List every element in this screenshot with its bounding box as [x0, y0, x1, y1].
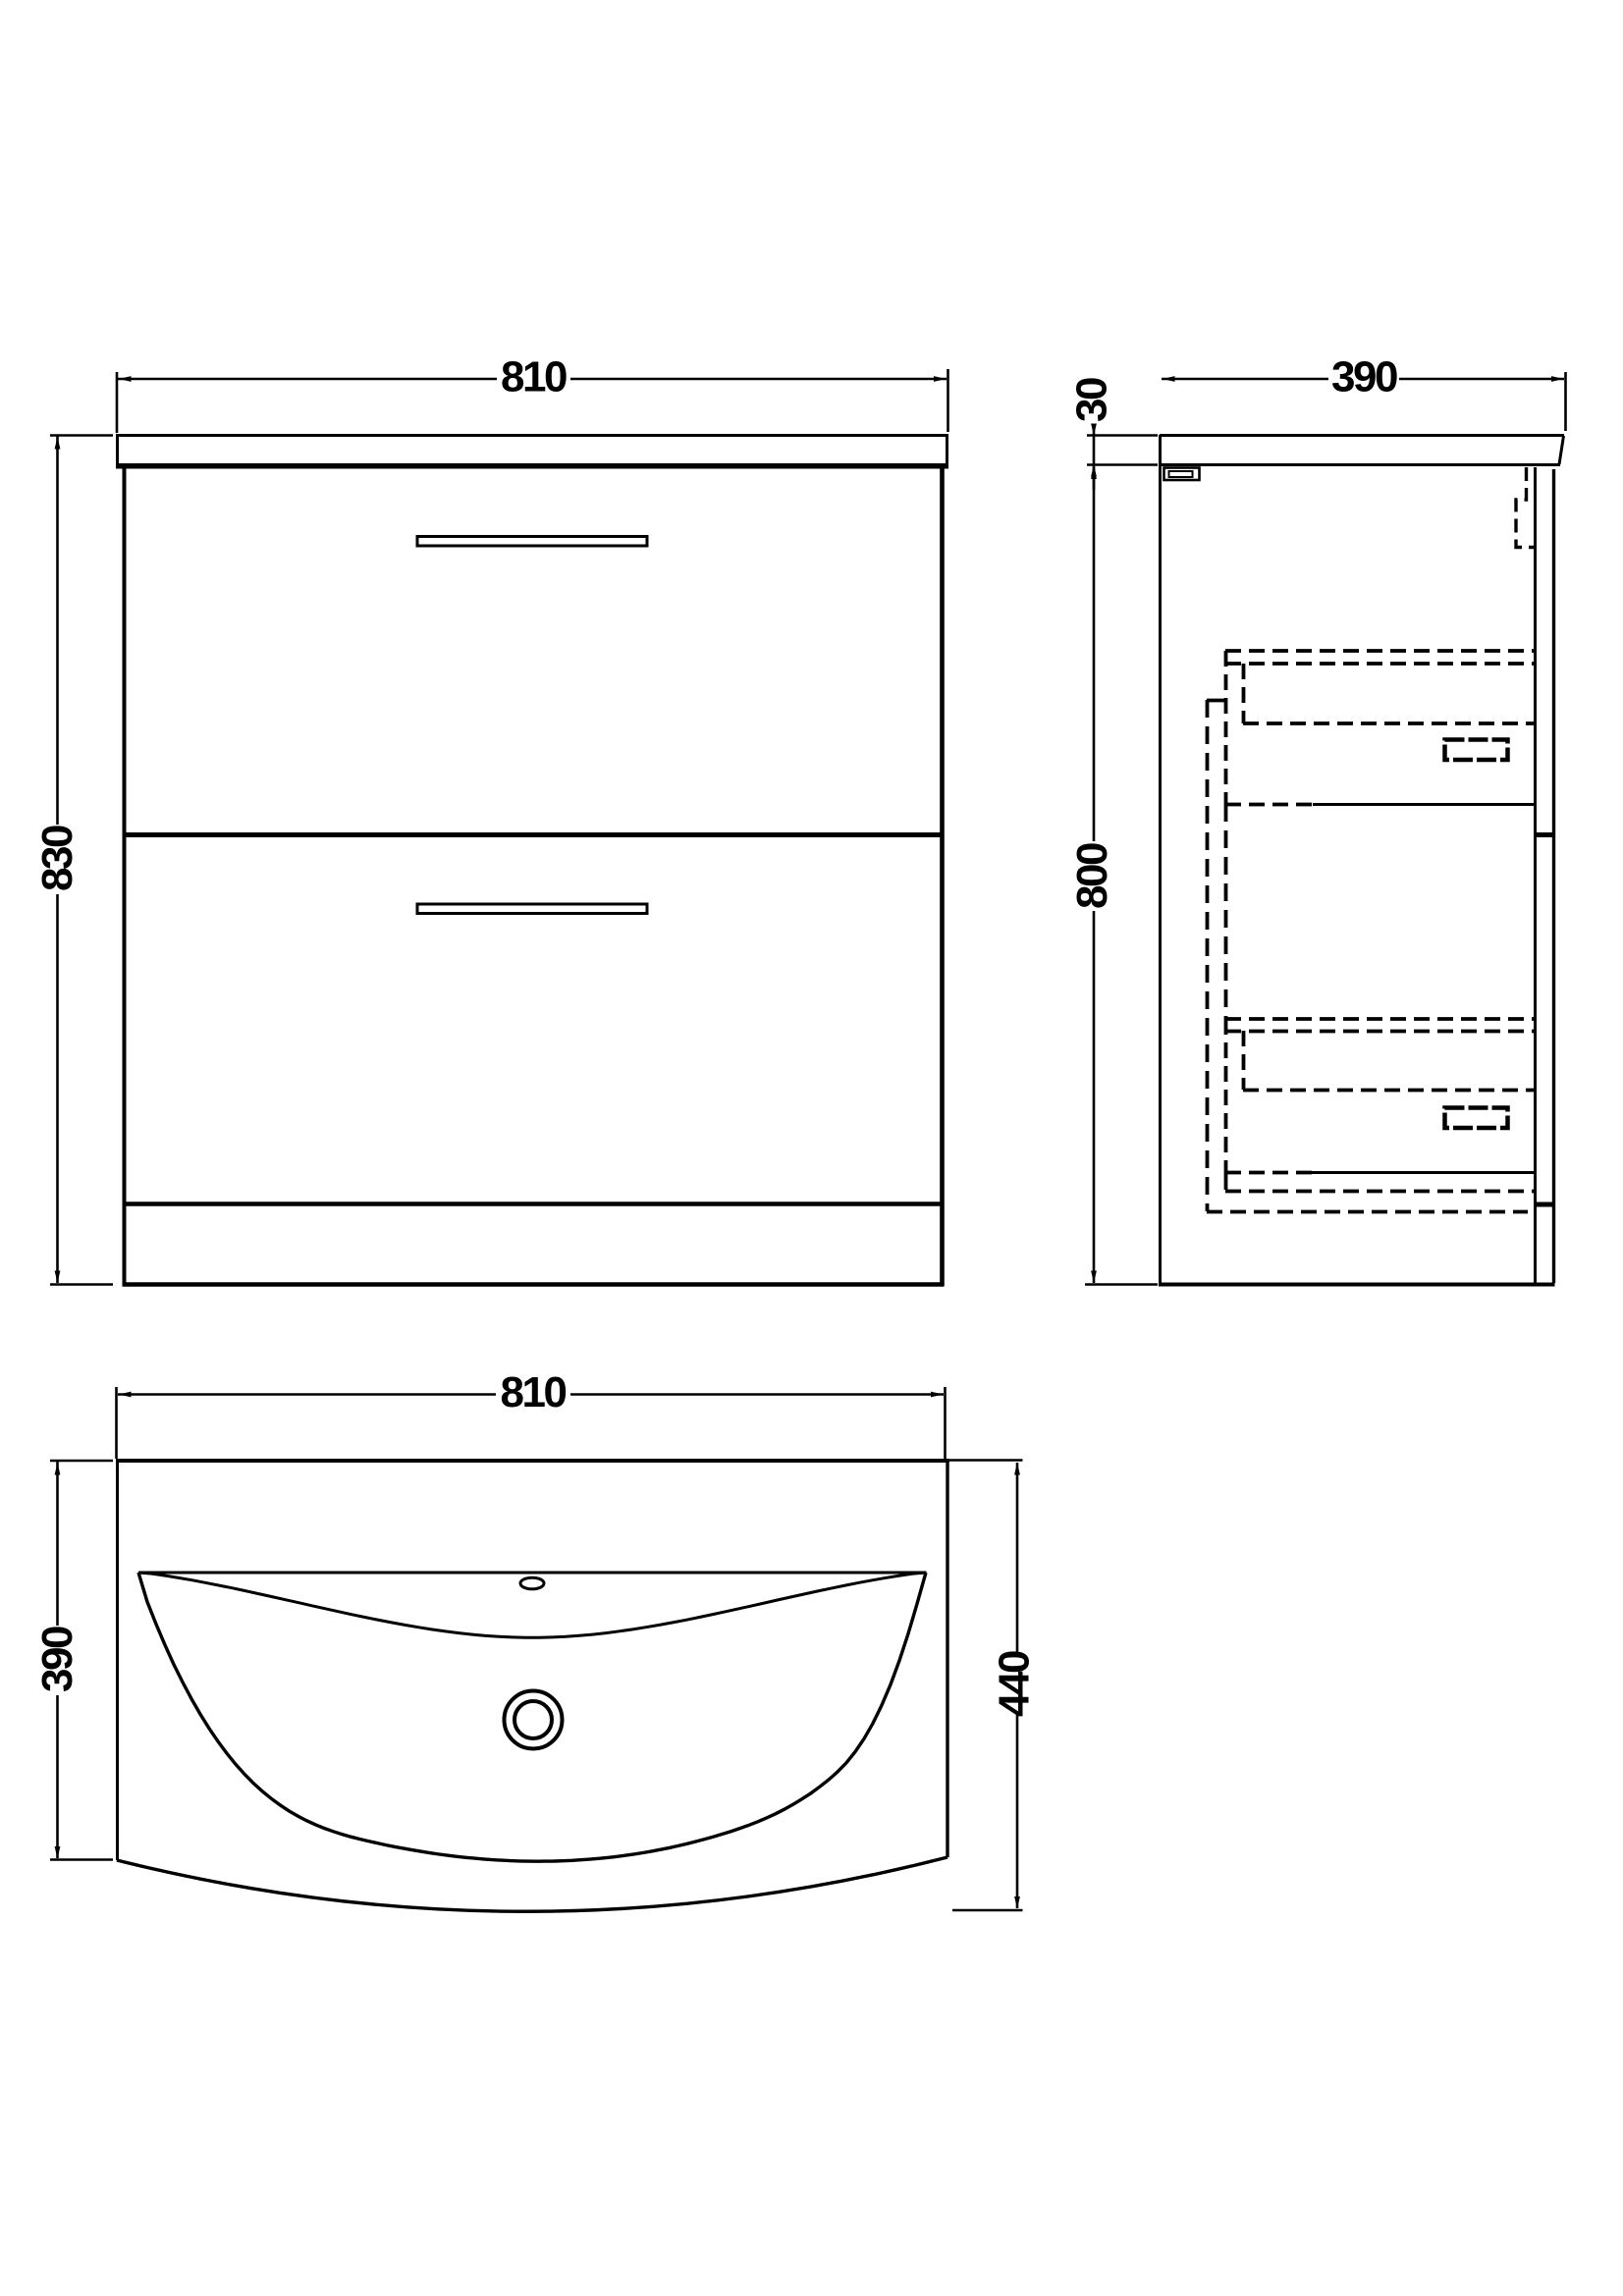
svg-text:810: 810 — [501, 1368, 567, 1416]
svg-text:390: 390 — [33, 1627, 81, 1692]
svg-text:800: 800 — [1068, 843, 1116, 909]
svg-text:830: 830 — [33, 826, 81, 891]
svg-text:810: 810 — [501, 353, 567, 401]
svg-text:390: 390 — [1331, 353, 1397, 401]
svg-text:30: 30 — [1068, 378, 1116, 422]
svg-text:440: 440 — [991, 1651, 1039, 1717]
